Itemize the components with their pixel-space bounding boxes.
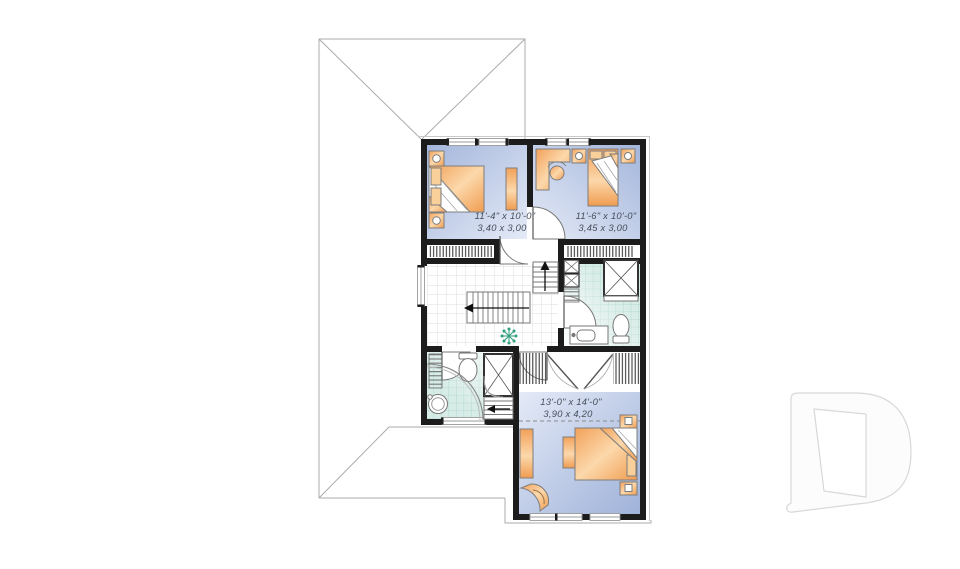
window <box>530 514 582 521</box>
stairs-upper-flight <box>533 261 558 293</box>
shower-icon <box>484 354 513 397</box>
bed-icon <box>575 428 637 480</box>
closet-rod-hatch <box>428 246 492 257</box>
plant-icon <box>501 328 517 344</box>
toilet-icon <box>459 353 477 382</box>
floor-plan-drawing: 11'-4" x 10'-0" 3,40 x 3,00 11'-6" x 10'… <box>0 0 960 569</box>
nightstand-icon <box>429 213 444 228</box>
vanity-sink-icon <box>570 326 608 344</box>
floor-plan-page: 11'-4" x 10'-0" 3,40 x 3,00 11'-6" x 10'… <box>0 0 960 569</box>
d-logo-watermark <box>787 393 911 512</box>
shelves-icon <box>564 289 579 302</box>
window <box>418 265 425 307</box>
dresser-icon <box>506 168 517 210</box>
master-dimension-metric: 3,90 x 4,20 <box>543 408 593 419</box>
nightstand-icon <box>429 151 444 166</box>
stairs-down-flight <box>484 397 513 419</box>
window <box>590 514 620 521</box>
closet-rod-hatch <box>566 246 634 257</box>
toilet-icon <box>613 315 629 344</box>
shelves-icon <box>429 354 442 388</box>
bedroom2-dimension-imperial: 11'-6" x 10'-0" <box>576 210 637 221</box>
nightstand-icon <box>572 149 586 163</box>
master-dimension-imperial: 13'-0" x 14'-0" <box>540 396 602 407</box>
stairs-mid-flight <box>464 292 530 323</box>
window <box>479 139 508 146</box>
bedroom2-dimension-metric: 3,45 x 3,00 <box>578 222 628 233</box>
nightstand-icon <box>621 149 635 163</box>
nightstand-icon <box>620 482 637 495</box>
bedroom1-dimension-metric: 3,40 x 3,00 <box>477 222 527 233</box>
window <box>567 139 592 146</box>
round-sink-icon <box>428 395 448 414</box>
window <box>447 139 478 146</box>
closet-rod-hatch <box>519 353 547 384</box>
shower-icon <box>604 260 638 301</box>
bedroom1-dimension-imperial: 11'-4" x 10'-0" <box>475 210 536 221</box>
closet-rod-hatch <box>613 353 640 384</box>
window <box>545 139 566 146</box>
bedroom-closets <box>427 245 640 258</box>
linen-cabinet-icon <box>564 260 579 287</box>
bedroom1-door-swing <box>500 236 528 264</box>
dresser-icon <box>563 437 576 468</box>
bed-icon <box>588 149 618 206</box>
nightstand-icon <box>620 415 637 428</box>
bed-icon <box>429 166 484 212</box>
dresser-icon <box>520 429 533 478</box>
